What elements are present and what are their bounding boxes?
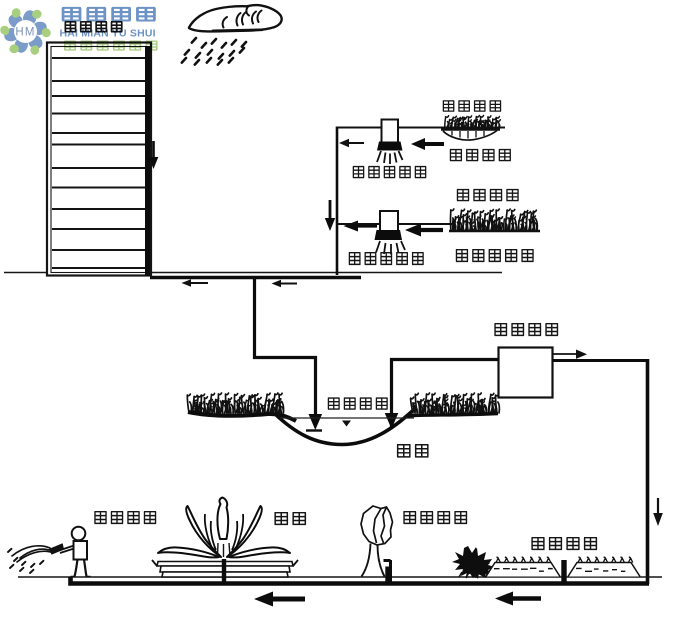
svg-text:HAI MIAN YU SHUI: HAI MIAN YU SHUI [59, 29, 155, 40]
svg-text:HM: HM [15, 27, 35, 39]
